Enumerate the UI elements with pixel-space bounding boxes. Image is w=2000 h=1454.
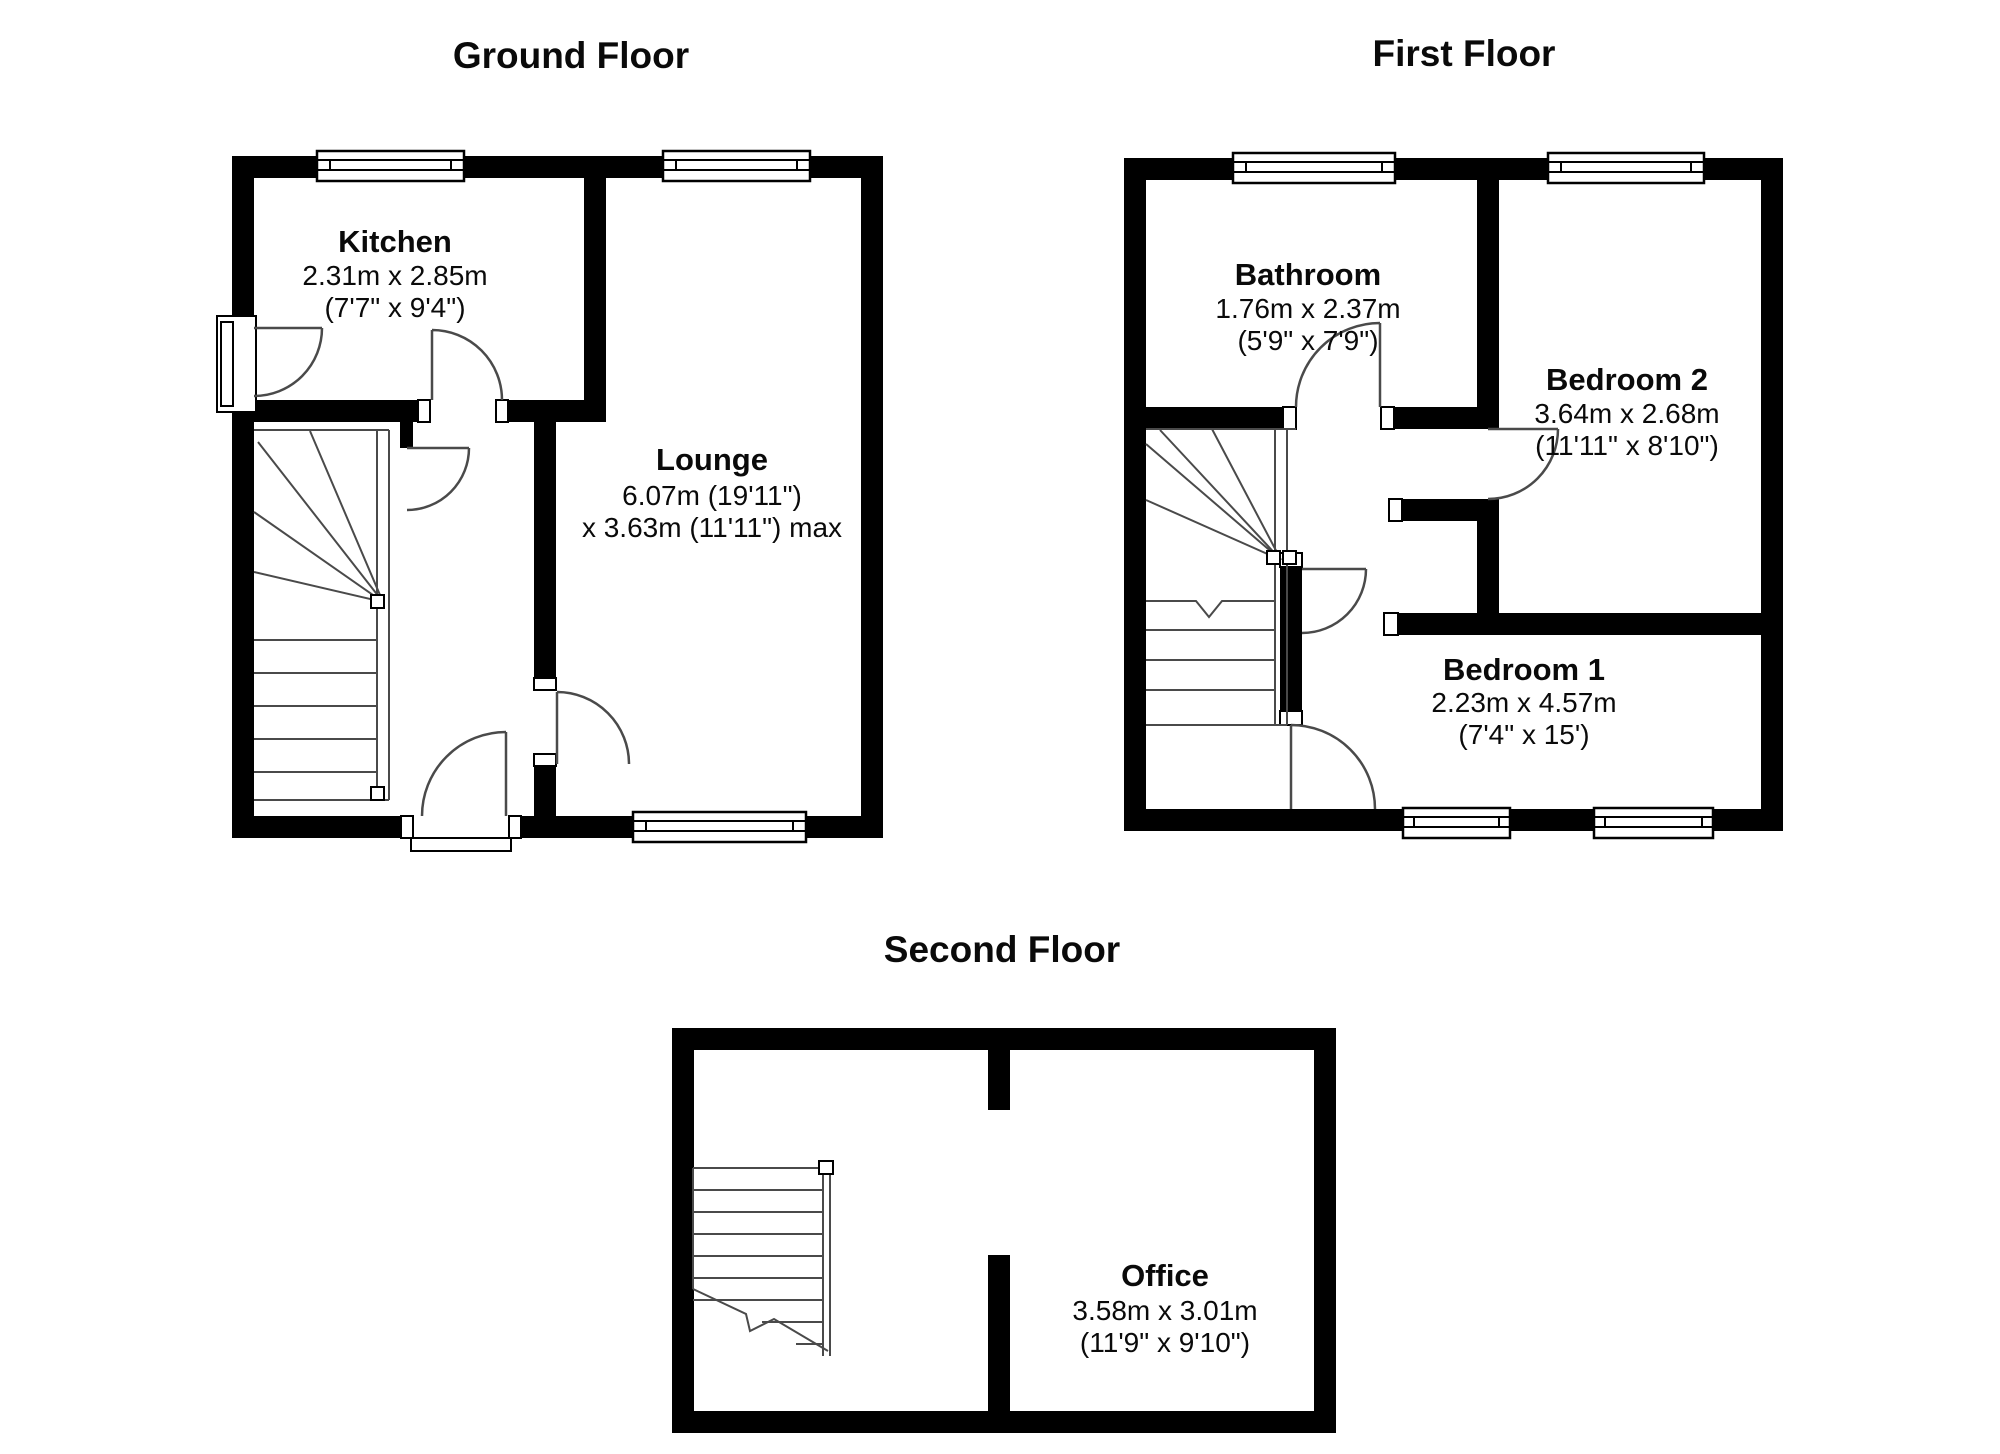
kitchen-window (317, 151, 464, 181)
lounge-door-swing (557, 692, 629, 764)
lounge-label: Lounge 6.07m (19'11") x 3.63m (11'11") m… (582, 442, 842, 543)
landing-wall-jamb-bottom (1280, 711, 1302, 725)
cupboard-wall-jamb (1389, 499, 1402, 521)
second-staircase (693, 1161, 833, 1356)
lounge-top-window-frame (663, 151, 810, 181)
lounge-bottom-window (633, 812, 806, 842)
bedroom1-window1-frame (1403, 808, 1510, 838)
office-divider-wall-top (988, 1050, 1010, 1110)
lounge-name: Lounge (656, 442, 768, 477)
bedroom1-window-1 (1403, 808, 1510, 838)
kitchen-label: Kitchen 2.31m x 2.85m (7'7" x 9'4") (302, 224, 487, 323)
kitchen-bottom-wall-right (508, 400, 606, 422)
bedroom1-door-swing (1291, 725, 1375, 809)
bathroom-window (1233, 153, 1395, 183)
first-floor-plan: First Floor (1124, 33, 1783, 838)
understairs-wall-stub (400, 422, 413, 448)
bathroom-bottom-wall-right (1394, 407, 1499, 429)
bedroom1-window2-frame (1594, 808, 1713, 838)
front-door-frame (217, 316, 256, 412)
bathroom-door-jamb-left (1283, 407, 1296, 429)
ground-stair-newel-bottom (371, 787, 384, 800)
bedroom1-name: Bedroom 1 (1443, 652, 1605, 687)
first-staircase (1146, 429, 1296, 725)
kitchen-lounge-divider-wall (584, 178, 606, 422)
first-stair-winders (1146, 429, 1281, 560)
office-dims-imperial: (11'9" x 9'10") (1080, 1327, 1250, 1358)
landing-door-swing (1302, 569, 1366, 633)
kitchen-dims-metric: 2.31m x 2.85m (302, 260, 487, 291)
back-door-threshold (411, 838, 511, 851)
bathroom-name: Bathroom (1235, 257, 1381, 292)
office-label: Office 3.58m x 3.01m (11'9" x 9'10") (1072, 1258, 1257, 1358)
ground-stair-treads (254, 640, 377, 772)
bedroom1-wall-jamb (1384, 613, 1398, 635)
bathroom-bottom-wall-left (1146, 407, 1283, 429)
lounge-bottom-window-frame (633, 812, 806, 842)
ground-stair-outline (254, 430, 389, 800)
first-outer-walls (1124, 158, 1783, 831)
bedroom2-dims-metric: 3.64m x 2.68m (1534, 398, 1719, 429)
ground-floor-plan: Ground Floor (217, 35, 883, 851)
bedroom2-dims-imperial: (11'11" x 8'10") (1535, 430, 1719, 461)
first-stair-newel-left (1267, 551, 1280, 564)
bathroom-bedroom2-divider-wall (1477, 180, 1499, 407)
bathroom-label: Bathroom 1.76m x 2.37m (5'9" x 7'9") (1215, 257, 1400, 356)
lounge-top-window (663, 151, 810, 181)
ground-bottom-door-opening (413, 814, 509, 840)
second-stair-newel (819, 1161, 833, 1174)
understairs-cupboard-door-swing (407, 448, 469, 510)
second-stair-treads-partial (762, 1322, 823, 1344)
office-dims-metric: 3.58m x 3.01m (1072, 1295, 1257, 1326)
floorplan-drawing: Ground Floor (0, 0, 2000, 1454)
bedroom1-dims-metric: 2.23m x 4.57m (1431, 687, 1616, 718)
kitchen-name: Kitchen (338, 224, 452, 259)
bedroom1-window-2 (1594, 808, 1713, 838)
kitchen-dims-imperial: (7'7" x 9'4") (324, 292, 465, 323)
floorplan-page: Ground Floor (0, 0, 2000, 1454)
second-stair-break-line (693, 1289, 828, 1351)
bedroom1-label: Bedroom 1 2.23m x 4.57m (7'4" x 15') (1431, 652, 1616, 750)
lounge-door-jamb-top (534, 678, 556, 690)
ground-stair-winders (254, 431, 383, 602)
ground-staircase (254, 430, 389, 800)
ground-floor-title: Ground Floor (453, 35, 689, 76)
second-stair-treads (693, 1190, 823, 1300)
first-stair-treads (1146, 601, 1275, 690)
front-door-swing (254, 328, 322, 396)
bedroom2-name: Bedroom 2 (1546, 362, 1708, 397)
kitchen-window-frame (317, 151, 464, 181)
lounge-dims-imperial: x 3.63m (11'11") max (582, 512, 842, 543)
bedroom1-dims-imperial: (7'4" x 15') (1458, 719, 1589, 750)
bathroom-door-jamb-right (1381, 407, 1394, 429)
landing-cupboard-wall (1402, 499, 1499, 521)
back-door-swing (422, 732, 506, 816)
first-floor-title: First Floor (1373, 33, 1556, 74)
front-door-frame-inner (221, 322, 233, 406)
bathroom-window-frame (1233, 153, 1395, 183)
landing-bedroom1-wall (1280, 567, 1302, 711)
second-floor-plan: Second Floor Office 3.58m x 3.01m (11'9"… (672, 929, 1336, 1433)
office-name: Office (1121, 1258, 1209, 1293)
back-door-jamb-right (509, 816, 521, 838)
first-stair-outline (1146, 429, 1296, 725)
ground-stair-newel-top (371, 595, 384, 608)
office-divider-wall-bottom (988, 1255, 1010, 1411)
kitchen-door-swing (432, 330, 502, 400)
second-floor-title: Second Floor (884, 929, 1120, 970)
second-stair-outline (693, 1168, 830, 1356)
first-stair-newel-right (1283, 551, 1296, 564)
lounge-door-jamb-bottom (534, 754, 556, 766)
bedroom2-window (1548, 153, 1704, 183)
kitchen-door-jamb-left (418, 400, 430, 422)
lounge-dims-metric: 6.07m (19'11") (622, 480, 802, 511)
kitchen-bottom-wall-left (254, 400, 418, 422)
bedroom2-window-frame (1548, 153, 1704, 183)
bathroom-dims-metric: 1.76m x 2.37m (1215, 293, 1400, 324)
back-door-jamb-left (401, 816, 413, 838)
bedroom2-left-wall-stub (1477, 521, 1499, 613)
bedroom1-top-wall (1398, 613, 1761, 635)
hall-lounge-wall (534, 422, 556, 678)
bedroom2-label: Bedroom 2 3.64m x 2.68m (11'11" x 8'10") (1534, 362, 1719, 461)
hall-lounge-wall-stub (534, 766, 556, 816)
kitchen-door-jamb-right (496, 400, 508, 422)
bathroom-dims-imperial: (5'9" x 7'9") (1237, 325, 1378, 356)
